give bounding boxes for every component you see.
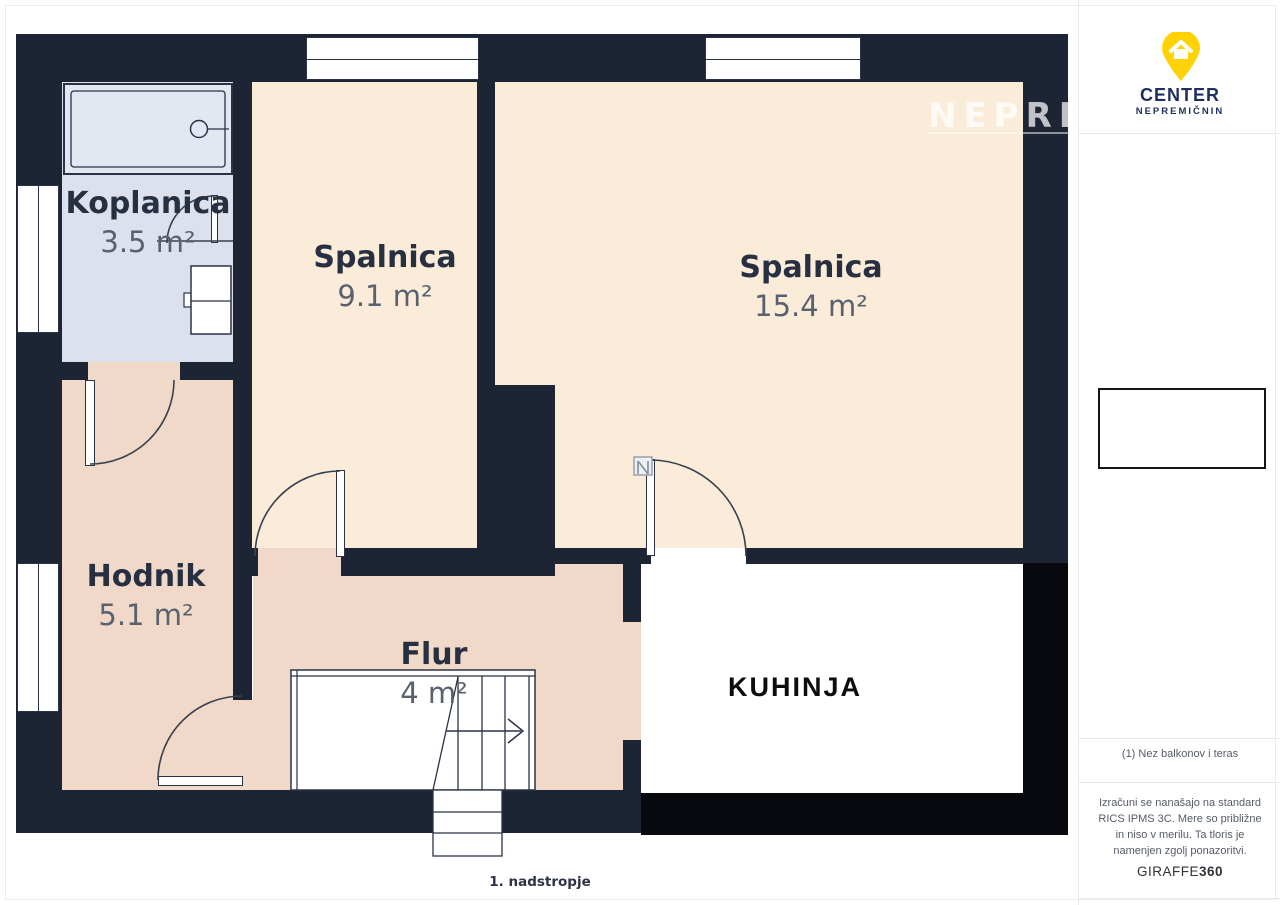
door-leaf-hallway <box>158 776 243 786</box>
door-leaf-bathroom <box>85 380 95 466</box>
disclaimer-text: Izračuni se nanašajo na standard RICS IP… <box>1096 796 1264 860</box>
room-name: KUHINJA <box>728 672 862 702</box>
bedroom-large-door-gap <box>651 548 746 564</box>
window-pane-line <box>706 59 860 60</box>
window-left-bathroom <box>17 185 59 333</box>
label-bedroom-large: Spalnica 15.4 m² <box>739 250 882 323</box>
window-left-hallway <box>17 563 59 712</box>
sidebar-divider <box>1079 898 1280 899</box>
wall-left <box>16 34 62 833</box>
wall-bottom-black <box>641 793 1068 835</box>
window-top-right <box>705 37 861 80</box>
wall-bathroom-bottom-right <box>180 362 233 380</box>
door-leaf-bedroom-large <box>646 459 655 556</box>
room-area: 9.1 m² <box>313 279 456 313</box>
room-name: Hodnik <box>87 559 206 595</box>
label-bedroom-small: Spalnica 9.1 m² <box>313 240 456 313</box>
wall-kitchen-top-right <box>746 548 1023 564</box>
wall-bedroom-divider-thick <box>477 385 555 548</box>
window-pane-line <box>307 59 478 60</box>
floorplan-page: NEPREMIČ Koplanica 3.5 m² Spalnica 9.1 m… <box>0 0 1280 905</box>
sidebar: CENTER NEPREMIČNIN (1) Nez balkonov i te… <box>1078 0 1280 905</box>
sidebar-divider <box>1079 738 1280 739</box>
bathroom-door-gap <box>88 362 180 380</box>
wall-bedroom-divider-thin <box>477 82 495 390</box>
label-hallway: Hodnik 5.1 m² <box>87 559 206 632</box>
sidebar-divider <box>1079 133 1280 134</box>
wall-bottom <box>16 790 630 833</box>
room-area: 3.5 m² <box>66 225 231 259</box>
map-pin-house-icon <box>1158 32 1204 82</box>
label-bathroom: Koplanica 3.5 m² <box>66 186 231 259</box>
room-area: 15.4 m² <box>739 289 882 323</box>
wall-column-center <box>233 82 252 700</box>
watermark: NEPREMIČ <box>928 96 1068 136</box>
wall-kitchen-left-lower <box>623 740 641 833</box>
door-leaf-bedroom-small <box>336 470 345 557</box>
logo-nepremicnin: NEPREMIČNIN <box>1079 106 1280 117</box>
footnote-balconies: (1) Nez balkonov i teras <box>1089 748 1271 760</box>
wall-bathroom-bottom-left <box>62 362 88 380</box>
watermark-underline <box>928 132 1068 134</box>
wall-kitchen-left-upper <box>623 548 641 622</box>
room-bedroom-small <box>252 82 477 548</box>
label-flur: Flur 4 m² <box>400 637 468 710</box>
wall-top <box>16 34 1068 82</box>
brand-name: GIRAFFE <box>1137 864 1199 879</box>
legend-box <box>1098 388 1266 469</box>
room-name: Spalnica <box>313 240 456 276</box>
room-name: Flur <box>400 637 468 673</box>
room-name: Spalnica <box>739 250 882 286</box>
window-pane-line <box>38 186 39 332</box>
window-pane-line <box>38 564 39 711</box>
logo-center: CENTER <box>1079 85 1280 106</box>
room-area: 4 m² <box>400 676 468 710</box>
label-kitchen: KUHINJA <box>728 672 862 703</box>
wall-flur-top-left <box>233 548 258 576</box>
window-top-left <box>306 37 479 80</box>
sidebar-divider <box>1079 782 1280 783</box>
giraffe360-brand: GIRAFFE360 <box>1079 864 1280 879</box>
wall-flur-top-right <box>341 548 555 576</box>
floor-caption: 1. nadstropje <box>489 874 590 890</box>
room-area: 5.1 m² <box>87 598 206 632</box>
room-name: Koplanica <box>66 186 231 222</box>
brand-suffix: 360 <box>1199 864 1223 879</box>
bedroom-small-door-gap <box>258 548 341 576</box>
